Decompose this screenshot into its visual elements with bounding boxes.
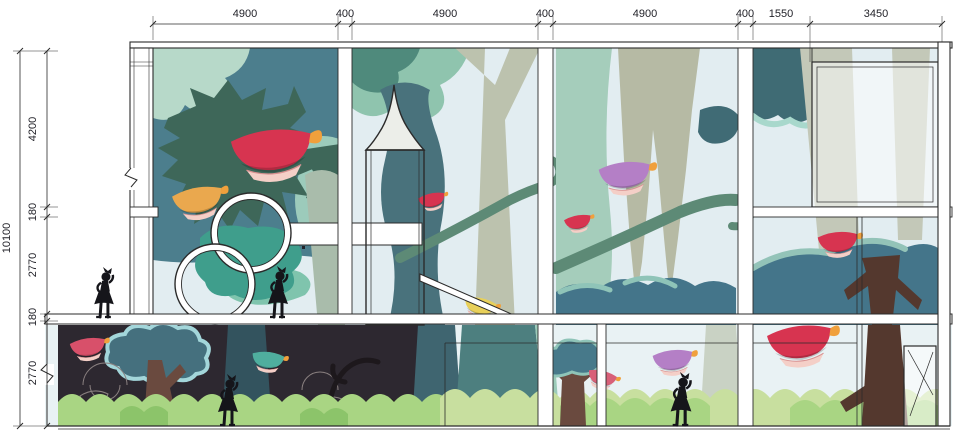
dim-label: 180: [27, 308, 39, 326]
bridge-detail: [302, 246, 305, 249]
mezzanine-slab-right: [753, 207, 952, 217]
dim-label: 400: [536, 8, 554, 20]
dim-label: 400: [336, 8, 354, 20]
extension-lines: [40, 207, 58, 321]
dim-label: 1550: [769, 8, 793, 20]
girl-silhouette: [94, 267, 114, 317]
dim-label: 4900: [433, 8, 457, 20]
right-wall: [938, 42, 950, 426]
elevation-drawing: 4900 400 4900 400 4900 400 1550 3450 101…: [0, 0, 960, 433]
mullion: [538, 48, 553, 314]
walkway-bridge: [288, 223, 422, 245]
upper-room: [812, 62, 938, 207]
mullion: [338, 48, 352, 314]
dim-label: 180: [27, 203, 39, 221]
dim-label: 4900: [233, 8, 257, 20]
mullion-lower: [597, 324, 606, 426]
roof-band: [130, 42, 952, 48]
dim-label: 4200: [27, 117, 39, 141]
dim-label: 10100: [1, 223, 13, 254]
mezzanine-slab: [130, 207, 158, 217]
elevation-sheet: 4900 400 4900 400 4900 400 1550 3450 101…: [0, 0, 960, 433]
mullion-lower: [738, 324, 753, 426]
dim-label: 400: [736, 8, 754, 20]
dim-label: 2770: [27, 253, 39, 277]
mullion: [738, 48, 753, 314]
tree-trunk-brown: [862, 325, 908, 426]
mural-lower: [45, 321, 952, 426]
mullion-lower: [538, 324, 553, 426]
dim-label: 4900: [633, 8, 657, 20]
dim-label: 3450: [864, 8, 888, 20]
floor-slab: [45, 314, 952, 324]
dim-label: 2770: [27, 361, 39, 385]
